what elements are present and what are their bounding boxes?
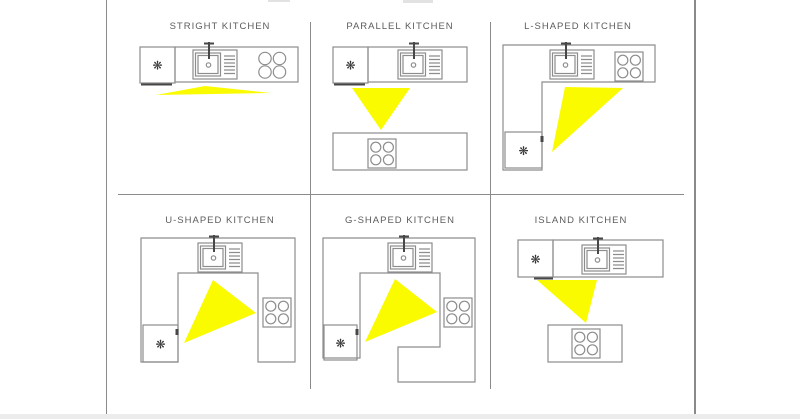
floorplan-island: ❋ <box>490 194 695 419</box>
svg-text:❋: ❋ <box>335 337 345 351</box>
sink-icon <box>550 42 594 79</box>
refrigerator-icon: ❋ <box>518 240 553 279</box>
floorplan-parallel: ❋ <box>310 0 490 194</box>
cooktop-icon <box>263 298 291 327</box>
work-triangle <box>156 86 271 95</box>
cooktop-icon <box>368 139 396 168</box>
sink-icon <box>198 235 242 272</box>
svg-text:❋: ❋ <box>518 144 528 158</box>
work-triangle <box>352 88 410 130</box>
floorplan-g-shaped: ❋ <box>310 194 490 419</box>
svg-text:❋: ❋ <box>345 59 355 73</box>
refrigerator-icon: ❋ <box>333 47 368 85</box>
sink-icon <box>388 235 432 272</box>
svg-text:❋: ❋ <box>530 253 540 267</box>
floorplan-u-shaped: ❋ <box>106 194 310 419</box>
work-triangle <box>365 279 437 342</box>
svg-text:❋: ❋ <box>152 59 162 73</box>
counter-island <box>333 133 467 170</box>
refrigerator-icon: ❋ <box>324 325 359 360</box>
svg-text:❋: ❋ <box>155 338 165 352</box>
work-triangle <box>184 280 256 343</box>
counter <box>368 47 467 82</box>
refrigerator-icon: ❋ <box>140 47 175 85</box>
kitchen-layouts-diagram: STRIGHT KITCHEN PARALLEL KITCHEN L-SHAPE… <box>0 0 800 419</box>
cooktop-icon <box>259 52 286 78</box>
island-counter <box>548 325 622 362</box>
floorplan-l-shaped: ❋ <box>490 0 695 194</box>
cooktop-icon <box>615 52 643 81</box>
cooktop-icon <box>444 298 472 327</box>
cooktop-icon <box>572 329 600 358</box>
refrigerator-icon: ❋ <box>505 132 544 168</box>
sink-icon <box>582 237 626 274</box>
work-triangle <box>537 280 597 323</box>
refrigerator-icon: ❋ <box>143 325 179 362</box>
work-triangle <box>552 87 623 152</box>
floorplan-straight: ❋ <box>106 0 310 194</box>
